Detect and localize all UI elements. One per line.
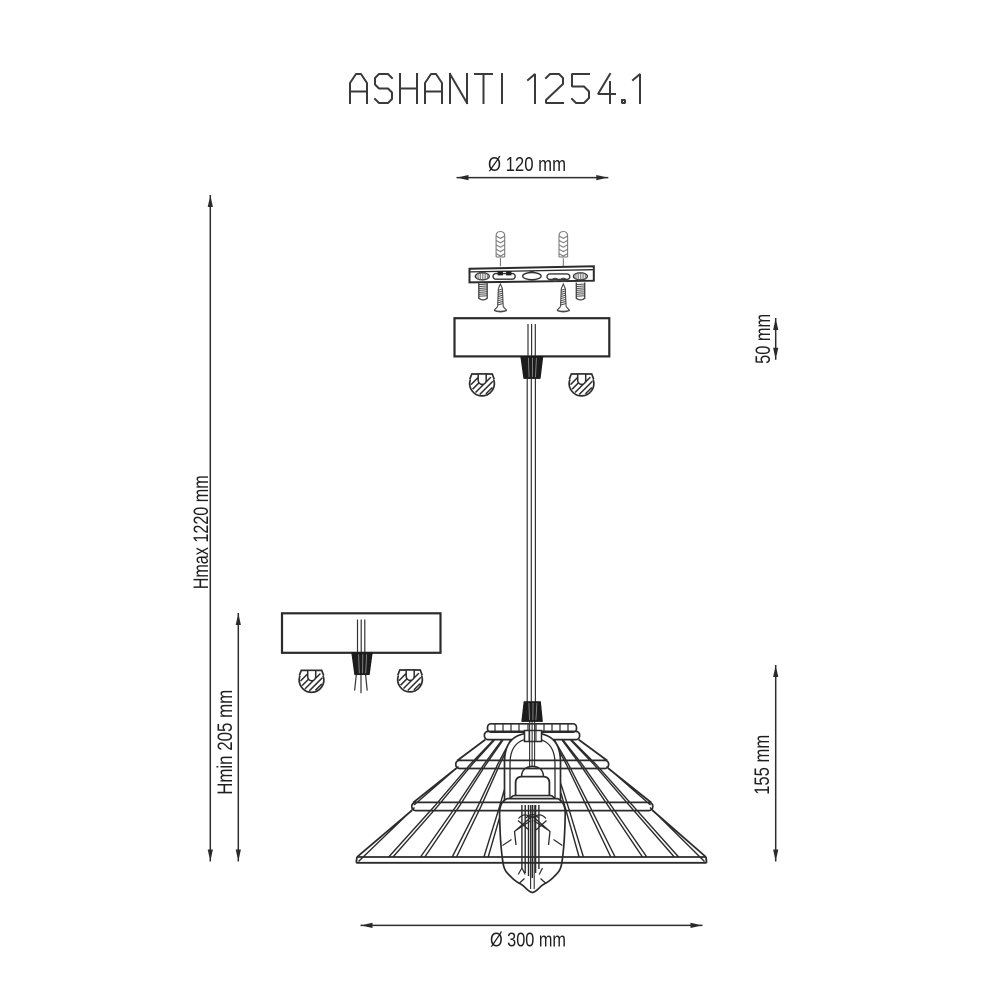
svg-text:50 mm: 50 mm (751, 314, 775, 364)
svg-text:Hmax 1220 mm: Hmax 1220 mm (189, 475, 213, 589)
svg-text:Ø 300 mm: Ø 300 mm (490, 929, 566, 952)
svg-text:Hmin 205 mm: Hmin 205 mm (213, 690, 237, 795)
svg-text:155 mm: 155 mm (750, 735, 774, 795)
svg-text:Ø 120 mm: Ø 120 mm (488, 154, 566, 176)
